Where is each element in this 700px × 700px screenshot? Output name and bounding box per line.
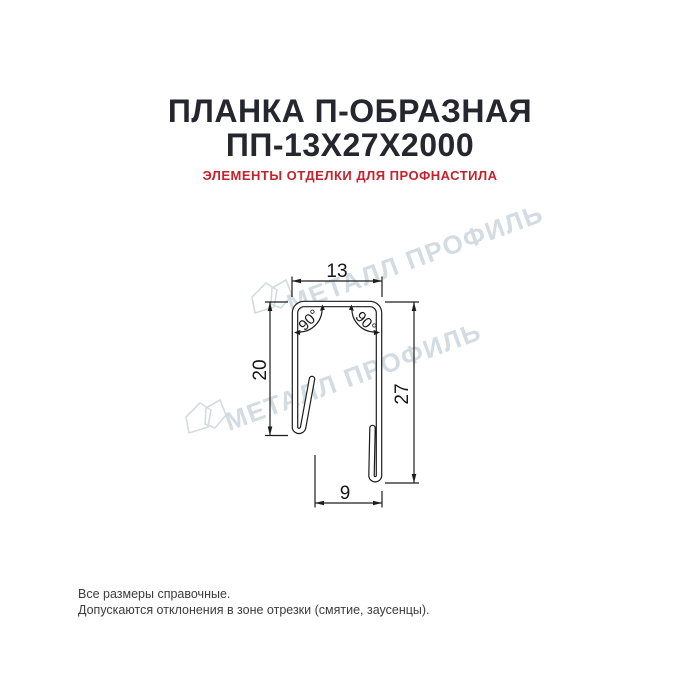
watermark-lower: МЕТАЛЛ ПРОФИЛЬ xyxy=(186,316,486,437)
footer-note-1: Все размеры справочные. xyxy=(78,587,430,603)
watermark-upper: МЕТАЛЛ ПРОФИЛЬ xyxy=(252,198,548,319)
watermark-text: МЕТАЛЛ ПРОФИЛЬ xyxy=(283,198,548,319)
footer-note-2: Допускаются отклонения в зоне отрезки (с… xyxy=(78,603,430,619)
dim-label-27: 27 xyxy=(392,383,413,404)
dim-label-13: 13 xyxy=(326,261,347,282)
page: ПЛАНКА П-ОБРАЗНАЯ ПП-13Х27Х2000 ЭЛЕМЕНТЫ… xyxy=(0,0,700,700)
dimension-right-height: 27 xyxy=(385,302,419,483)
footer-notes: Все размеры справочные. Допускаются откл… xyxy=(78,587,430,618)
metall-profil-logo-icon xyxy=(186,400,226,433)
dim-label-9: 9 xyxy=(340,483,351,504)
dim-label-20: 20 xyxy=(250,359,271,380)
